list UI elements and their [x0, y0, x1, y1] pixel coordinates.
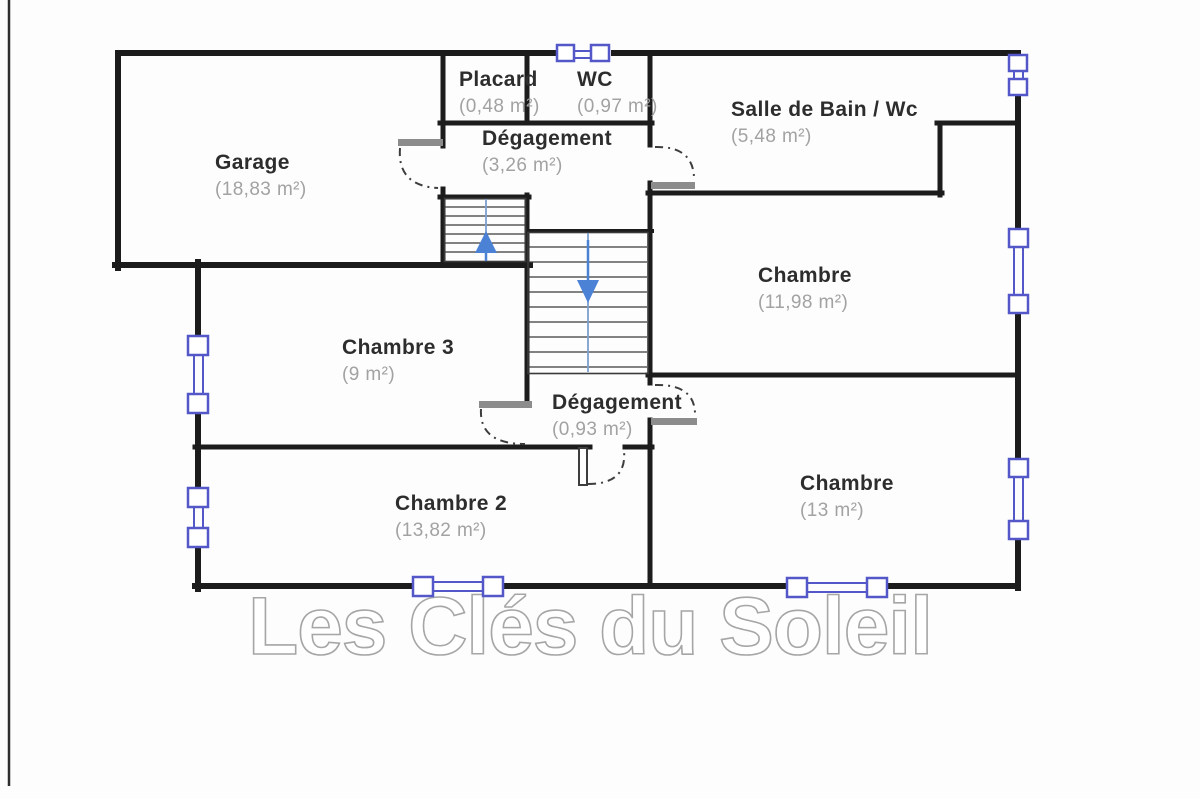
floor-plan: Les Clés du Soleil — [0, 0, 1200, 799]
room-name: Chambre 2 — [395, 491, 507, 517]
room-label-wc: WC (0,97 m²) — [577, 67, 658, 119]
door-chambre-2 — [579, 448, 624, 485]
room-label-degagement: Dégagement (3,26 m²) — [482, 126, 612, 178]
room-area: (9 m²) — [342, 363, 454, 387]
room-area: (13,82 m²) — [395, 519, 507, 543]
window-icon-right-bottom — [1009, 459, 1028, 539]
room-area: (13 m²) — [800, 499, 894, 523]
room-label-chambre: Chambre (11,98 m²) — [758, 263, 852, 315]
room-name: Garage — [215, 150, 307, 176]
room-name: Chambre — [800, 471, 894, 497]
room-label-chambre-13: Chambre (13 m²) — [800, 471, 894, 523]
window-icon-top — [557, 45, 609, 61]
window-icon-left-lower — [188, 488, 208, 547]
room-area: (18,83 m²) — [215, 178, 307, 202]
room-label-chambre-3: Chambre 3 (9 m²) — [342, 335, 454, 387]
room-name: Chambre 3 — [342, 335, 454, 361]
room-label-placard: Placard (0,48 m²) — [459, 67, 540, 119]
door-salle-de-bain — [651, 147, 695, 189]
room-area: (11,98 m²) — [758, 291, 852, 315]
room-name: WC — [577, 67, 658, 93]
room-name: Chambre — [758, 263, 852, 289]
stairs-small-up — [445, 199, 526, 262]
room-area: (3,26 m²) — [482, 154, 612, 178]
window-icon-right-top — [1009, 55, 1027, 95]
room-name: Dégagement — [552, 390, 682, 416]
watermark-text: Les Clés du Soleil — [248, 581, 932, 672]
room-area: (0,93 m²) — [552, 418, 682, 442]
window-icon-left-upper — [188, 336, 208, 413]
door-garage — [398, 139, 443, 188]
room-label-salle-de-bain: Salle de Bain / Wc (5,48 m²) — [731, 97, 918, 149]
room-label-degagement-2: Dégagement (0,93 m²) — [552, 390, 682, 442]
room-name: Salle de Bain / Wc — [731, 97, 918, 123]
door-chambre-3 — [479, 401, 532, 444]
room-name: Placard — [459, 67, 540, 93]
stairs-large-down — [528, 233, 648, 374]
room-label-garage: Garage (18,83 m²) — [215, 150, 307, 202]
window-icon-right-middle — [1009, 229, 1028, 313]
room-name: Dégagement — [482, 126, 612, 152]
room-area: (5,48 m²) — [731, 125, 918, 149]
room-area: (0,48 m²) — [459, 95, 540, 119]
room-area: (0,97 m²) — [577, 95, 658, 119]
room-label-chambre-2: Chambre 2 (13,82 m²) — [395, 491, 507, 543]
